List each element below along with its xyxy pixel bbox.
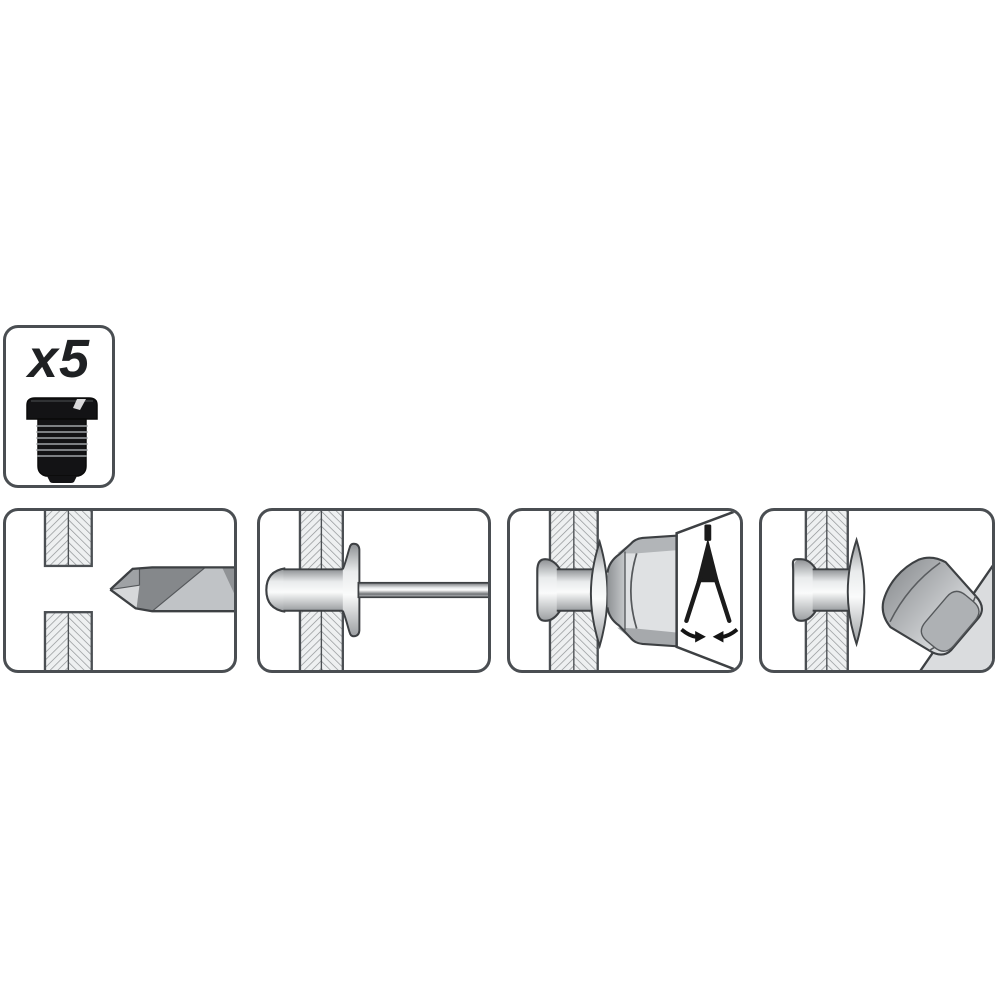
step-2-panel bbox=[257, 508, 491, 673]
tool-hex-nose-icon bbox=[607, 535, 685, 647]
rivet-nut-head bbox=[27, 398, 97, 419]
compress-rivet-with-tool-icon bbox=[510, 511, 740, 670]
step-3-panel bbox=[507, 508, 743, 673]
step-1-panel bbox=[3, 508, 237, 673]
insert-blind-rivet-icon bbox=[260, 511, 488, 670]
installed-rivet-cap-nut-icon bbox=[762, 511, 992, 670]
quantity-label: x5 bbox=[6, 328, 112, 390]
instruction-sheet: x5 bbox=[0, 0, 1000, 1000]
tool-symbol-panel bbox=[677, 511, 740, 670]
hex-head-rivet-nut-icon bbox=[22, 394, 102, 484]
drill-hole-icon bbox=[6, 511, 234, 670]
rivet-mandrel bbox=[358, 583, 488, 597]
rivet-nut-threaded-body bbox=[37, 419, 88, 483]
drill-bit-icon bbox=[110, 567, 234, 611]
sheet-cross-section-with-hole bbox=[45, 511, 92, 670]
step-4-panel bbox=[759, 508, 995, 673]
quantity-badge: x5 bbox=[3, 325, 115, 488]
